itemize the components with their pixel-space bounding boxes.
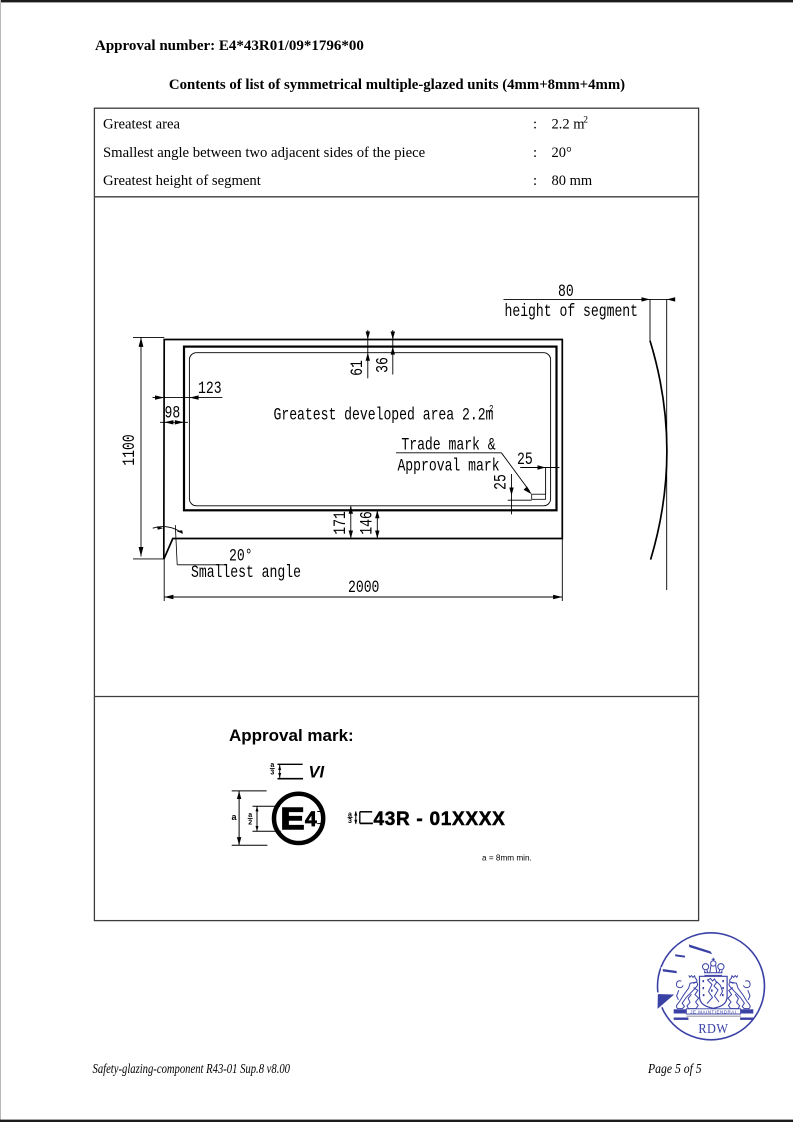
svg-text::: : [533,117,537,133]
svg-text:171: 171 [330,511,350,535]
svg-text:1100: 1100 [119,434,139,465]
svg-text:Safety-glazing-component R43-0: Safety-glazing-component R43-01 Sup.8 v8… [93,1061,290,1076]
svg-text:3: 3 [348,818,352,825]
svg-text:Approval number: E4*43R01/09*1: Approval number: E4*43R01/09*1796*00 [95,38,364,54]
svg-text::: : [533,173,537,189]
svg-text::: : [533,145,537,161]
svg-text:146: 146 [357,511,377,535]
svg-text:25: 25 [491,474,511,490]
svg-text:80: 80 [558,281,574,301]
svg-text:61: 61 [347,360,367,376]
svg-text:height of segment: height of segment [505,301,639,321]
svg-text:2.2 m: 2.2 m [552,117,586,133]
svg-text:Trade mark &: Trade mark & [401,435,495,455]
svg-text:Contents of list of symmetrica: Contents of list of symmetrical multiple… [169,77,625,93]
svg-text:98: 98 [165,403,181,423]
svg-text:Page 5 of 5: Page 5 of 5 [647,1061,702,1076]
svg-text:80 mm: 80 mm [552,173,593,189]
svg-text:Approval mark:: Approval mark: [229,726,354,745]
svg-text:2000: 2000 [348,577,379,597]
svg-text:36: 36 [373,357,393,373]
svg-text:Approval mark: Approval mark [397,456,499,476]
svg-text:JE MAINTIENDRAI: JE MAINTIENDRAI [690,1009,736,1014]
svg-text:2: 2 [583,116,588,126]
svg-text:123: 123 [198,378,222,398]
svg-text:2: 2 [248,820,252,827]
svg-text:Smallest angle: Smallest angle [191,562,301,582]
svg-text:20°: 20° [552,145,573,161]
svg-text:4: 4 [305,808,317,831]
svg-text:VI: VI [309,764,325,782]
svg-text:RDW: RDW [698,1020,728,1036]
svg-text:E: E [281,802,305,836]
svg-text:Greatest height of segment: Greatest height of segment [103,173,261,189]
svg-text:Greatest area: Greatest area [103,117,181,133]
svg-text:25: 25 [517,449,533,469]
svg-text:43R - 01XXXX: 43R - 01XXXX [374,809,506,830]
svg-text:3: 3 [270,770,274,777]
svg-text:2: 2 [489,404,493,415]
svg-text:Smallest angle between two adj: Smallest angle between two adjacent side… [103,145,426,161]
svg-text:Greatest developed area 2.2m: Greatest developed area 2.2m [274,405,494,425]
svg-text:a = 8mm min.: a = 8mm min. [482,854,532,863]
